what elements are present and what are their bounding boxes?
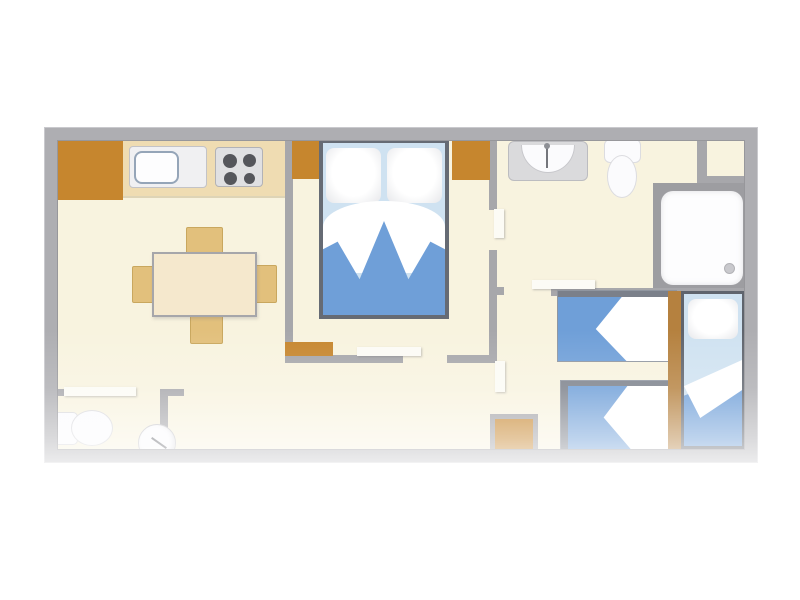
outer-wall [45, 128, 757, 462]
floorplan-canvas [0, 0, 800, 600]
